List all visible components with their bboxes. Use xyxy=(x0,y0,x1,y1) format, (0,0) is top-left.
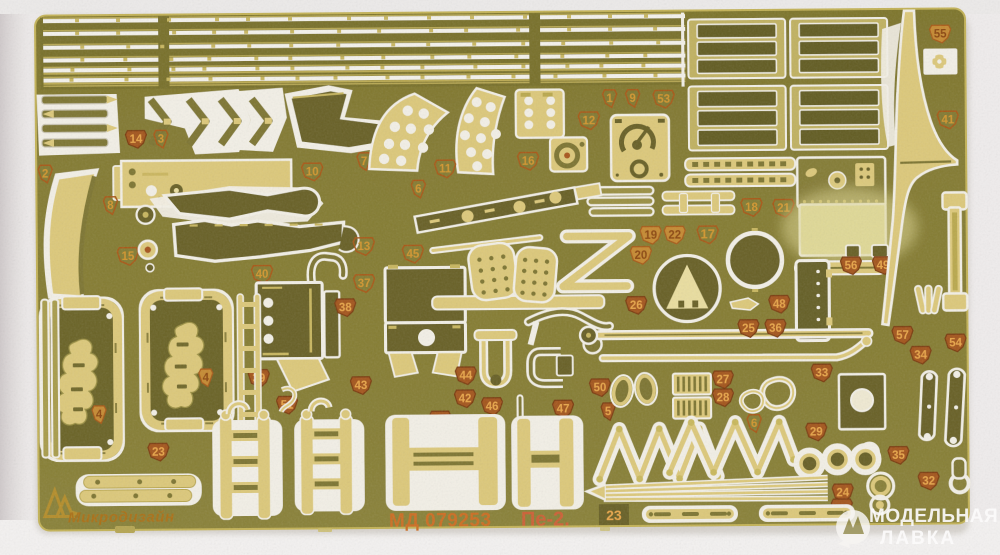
svg-text:МОДЕЛЬНАЯ: МОДЕЛЬНАЯ xyxy=(869,506,998,527)
svg-text:ЛАВКА: ЛАВКА xyxy=(880,528,956,549)
